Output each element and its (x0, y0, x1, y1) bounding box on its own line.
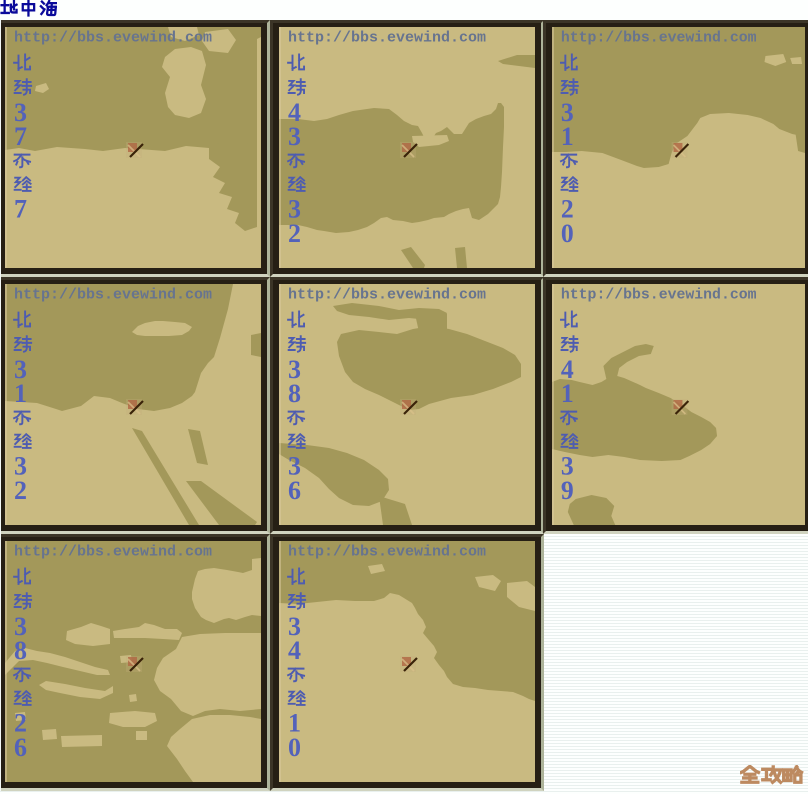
svg-text:9: 9 (561, 476, 574, 505)
svg-text:7: 7 (14, 122, 27, 151)
svg-text:6: 6 (14, 733, 27, 762)
svg-text:http://bbs.evewind.com: http://bbs.evewind.com (288, 544, 486, 561)
svg-text:6: 6 (288, 476, 301, 505)
svg-text:http://bbs.evewind.com: http://bbs.evewind.com (14, 287, 212, 304)
svg-text:0: 0 (288, 733, 301, 762)
svg-text:4: 4 (288, 636, 301, 665)
svg-text:1: 1 (14, 379, 27, 408)
svg-text:1: 1 (561, 379, 574, 408)
svg-text:http://bbs.evewind.com: http://bbs.evewind.com (14, 544, 212, 561)
svg-text:2: 2 (14, 476, 27, 505)
svg-text:8: 8 (14, 636, 27, 665)
svg-text:http://bbs.evewind.com: http://bbs.evewind.com (288, 30, 486, 47)
svg-text:1: 1 (561, 122, 574, 151)
svg-text:2: 2 (288, 219, 301, 248)
svg-text:3: 3 (288, 122, 301, 151)
svg-text:http://bbs.evewind.com: http://bbs.evewind.com (14, 30, 212, 47)
svg-text:http://bbs.evewind.com: http://bbs.evewind.com (288, 287, 486, 304)
svg-text:0: 0 (561, 219, 574, 248)
svg-text:http://bbs.evewind.com: http://bbs.evewind.com (561, 30, 757, 46)
svg-text:http://bbs.evewind.com: http://bbs.evewind.com (561, 287, 757, 303)
svg-text:8: 8 (288, 379, 301, 408)
svg-text:7: 7 (14, 195, 27, 224)
